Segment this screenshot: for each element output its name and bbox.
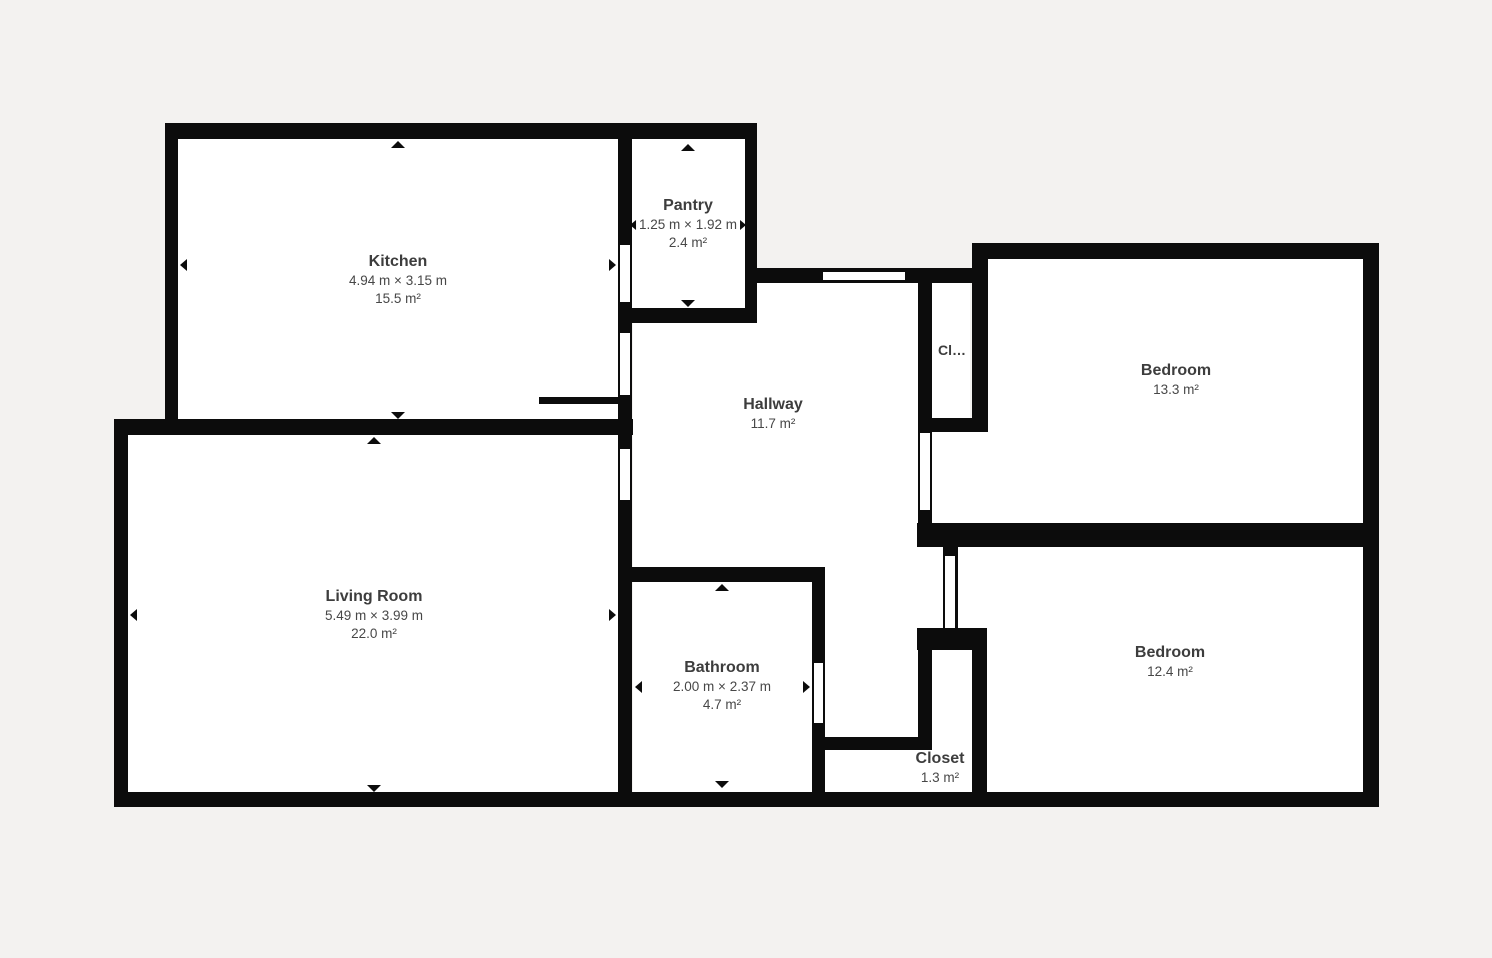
room-area: 11.7 m² bbox=[743, 415, 803, 433]
wall-top bbox=[165, 123, 757, 139]
wall-bedroom-top bbox=[972, 243, 1379, 259]
dim-arrow-left-icon bbox=[130, 609, 137, 621]
room-label-living: Living Room 5.49 m × 3.99 m 22.0 m² bbox=[325, 587, 423, 643]
room-hallway-floor bbox=[757, 283, 918, 323]
dim-arrow-up-icon bbox=[367, 437, 381, 444]
wall-right bbox=[1363, 243, 1379, 807]
room-label-pantry: Pantry 1.25 m × 1.92 m 2.4 m² bbox=[630, 196, 746, 252]
dim-arrow-right-icon bbox=[609, 609, 616, 621]
room-label-kitchen: Kitchen 4.94 m × 3.15 m 15.5 m² bbox=[349, 252, 447, 308]
floor-plan: Kitchen 4.94 m × 3.15 m 15.5 m² Pantry 1… bbox=[0, 0, 1492, 958]
room-name: Closet bbox=[916, 749, 965, 769]
dim-arrow-up-icon bbox=[391, 141, 405, 148]
wall-pantry-bottom bbox=[618, 308, 757, 323]
dim-arrow-right-icon bbox=[740, 220, 746, 230]
room-name: Cl… bbox=[938, 340, 966, 360]
door-living-hallway bbox=[620, 449, 630, 500]
room-label-closet-small: Cl… bbox=[938, 340, 966, 360]
dim-arrow-left-icon bbox=[630, 220, 636, 230]
wall-bedroom-divider bbox=[917, 523, 1363, 547]
room-dimensions: 5.49 m × 3.99 m bbox=[325, 607, 423, 625]
room-name: Bathroom bbox=[673, 658, 771, 678]
dim-arrow-down-icon bbox=[391, 412, 405, 419]
dim-arrow-right-icon bbox=[803, 681, 810, 693]
entry-door bbox=[823, 272, 905, 280]
room-area: 15.5 m² bbox=[349, 290, 447, 308]
room-bedroom-top-floor bbox=[932, 432, 986, 523]
door-kitchen-hallway bbox=[620, 333, 630, 395]
room-hallway-floor bbox=[918, 547, 943, 628]
room-area: 2.4 m² bbox=[630, 234, 746, 252]
wall-kitchen-stub bbox=[539, 397, 620, 404]
door-hallway-bedroom-top bbox=[920, 433, 930, 510]
dim-arrow-down-icon bbox=[681, 300, 695, 307]
dim-arrow-left-icon bbox=[180, 259, 187, 271]
room-dimensions: 1.25 m × 1.92 m bbox=[630, 216, 746, 234]
room-bedroom-bottom-floor bbox=[958, 547, 1363, 628]
door-kitchen-pantry bbox=[620, 245, 630, 302]
room-area: 1.3 m² bbox=[916, 769, 965, 787]
room-area: 4.7 m² bbox=[673, 696, 771, 714]
room-label-bathroom: Bathroom 2.00 m × 2.37 m 4.7 m² bbox=[673, 658, 771, 714]
room-dimensions: 4.94 m × 3.15 m bbox=[349, 272, 447, 290]
door-hallway-bedroom-bottom bbox=[945, 556, 955, 628]
room-label-bedroom-top: Bedroom 13.3 m² bbox=[1141, 361, 1211, 399]
room-name: Bedroom bbox=[1141, 361, 1211, 381]
room-area: 13.3 m² bbox=[1141, 381, 1211, 399]
dim-arrow-up-icon bbox=[681, 144, 695, 151]
door-hallway-bathroom bbox=[814, 663, 823, 723]
dim-arrow-down-icon bbox=[367, 785, 381, 792]
room-name: Living Room bbox=[325, 587, 423, 607]
wall-bottom bbox=[114, 792, 1379, 807]
room-area: 22.0 m² bbox=[325, 625, 423, 643]
room-area: 12.4 m² bbox=[1135, 663, 1205, 681]
wall-closet-bottom-left bbox=[918, 650, 932, 750]
wall-closet-small-bottom bbox=[918, 418, 988, 432]
wall-closet-bottom-right bbox=[972, 628, 987, 793]
room-name: Pantry bbox=[630, 196, 746, 216]
room-name: Kitchen bbox=[349, 252, 447, 272]
dim-arrow-down-icon bbox=[715, 781, 729, 788]
dim-arrow-right-icon bbox=[609, 259, 616, 271]
wall-bathroom-top bbox=[618, 567, 825, 582]
room-name: Bedroom bbox=[1135, 643, 1205, 663]
wall-pantry-right bbox=[745, 123, 757, 323]
dim-arrow-up-icon bbox=[715, 584, 729, 591]
room-name: Hallway bbox=[743, 395, 803, 415]
room-label-bedroom-bottom: Bedroom 12.4 m² bbox=[1135, 643, 1205, 681]
wall-kitchen-left bbox=[165, 123, 178, 435]
wall-living-top bbox=[114, 419, 633, 435]
room-dimensions-text: 1.25 m × 1.92 m bbox=[639, 216, 737, 234]
room-label-hallway: Hallway 11.7 m² bbox=[743, 395, 803, 433]
wall-living-left bbox=[114, 419, 128, 807]
dim-arrow-left-icon bbox=[635, 681, 642, 693]
room-label-closet-bottom: Closet 1.3 m² bbox=[916, 749, 965, 787]
wall-bedroom-top-left bbox=[972, 243, 988, 432]
room-dimensions: 2.00 m × 2.37 m bbox=[673, 678, 771, 696]
